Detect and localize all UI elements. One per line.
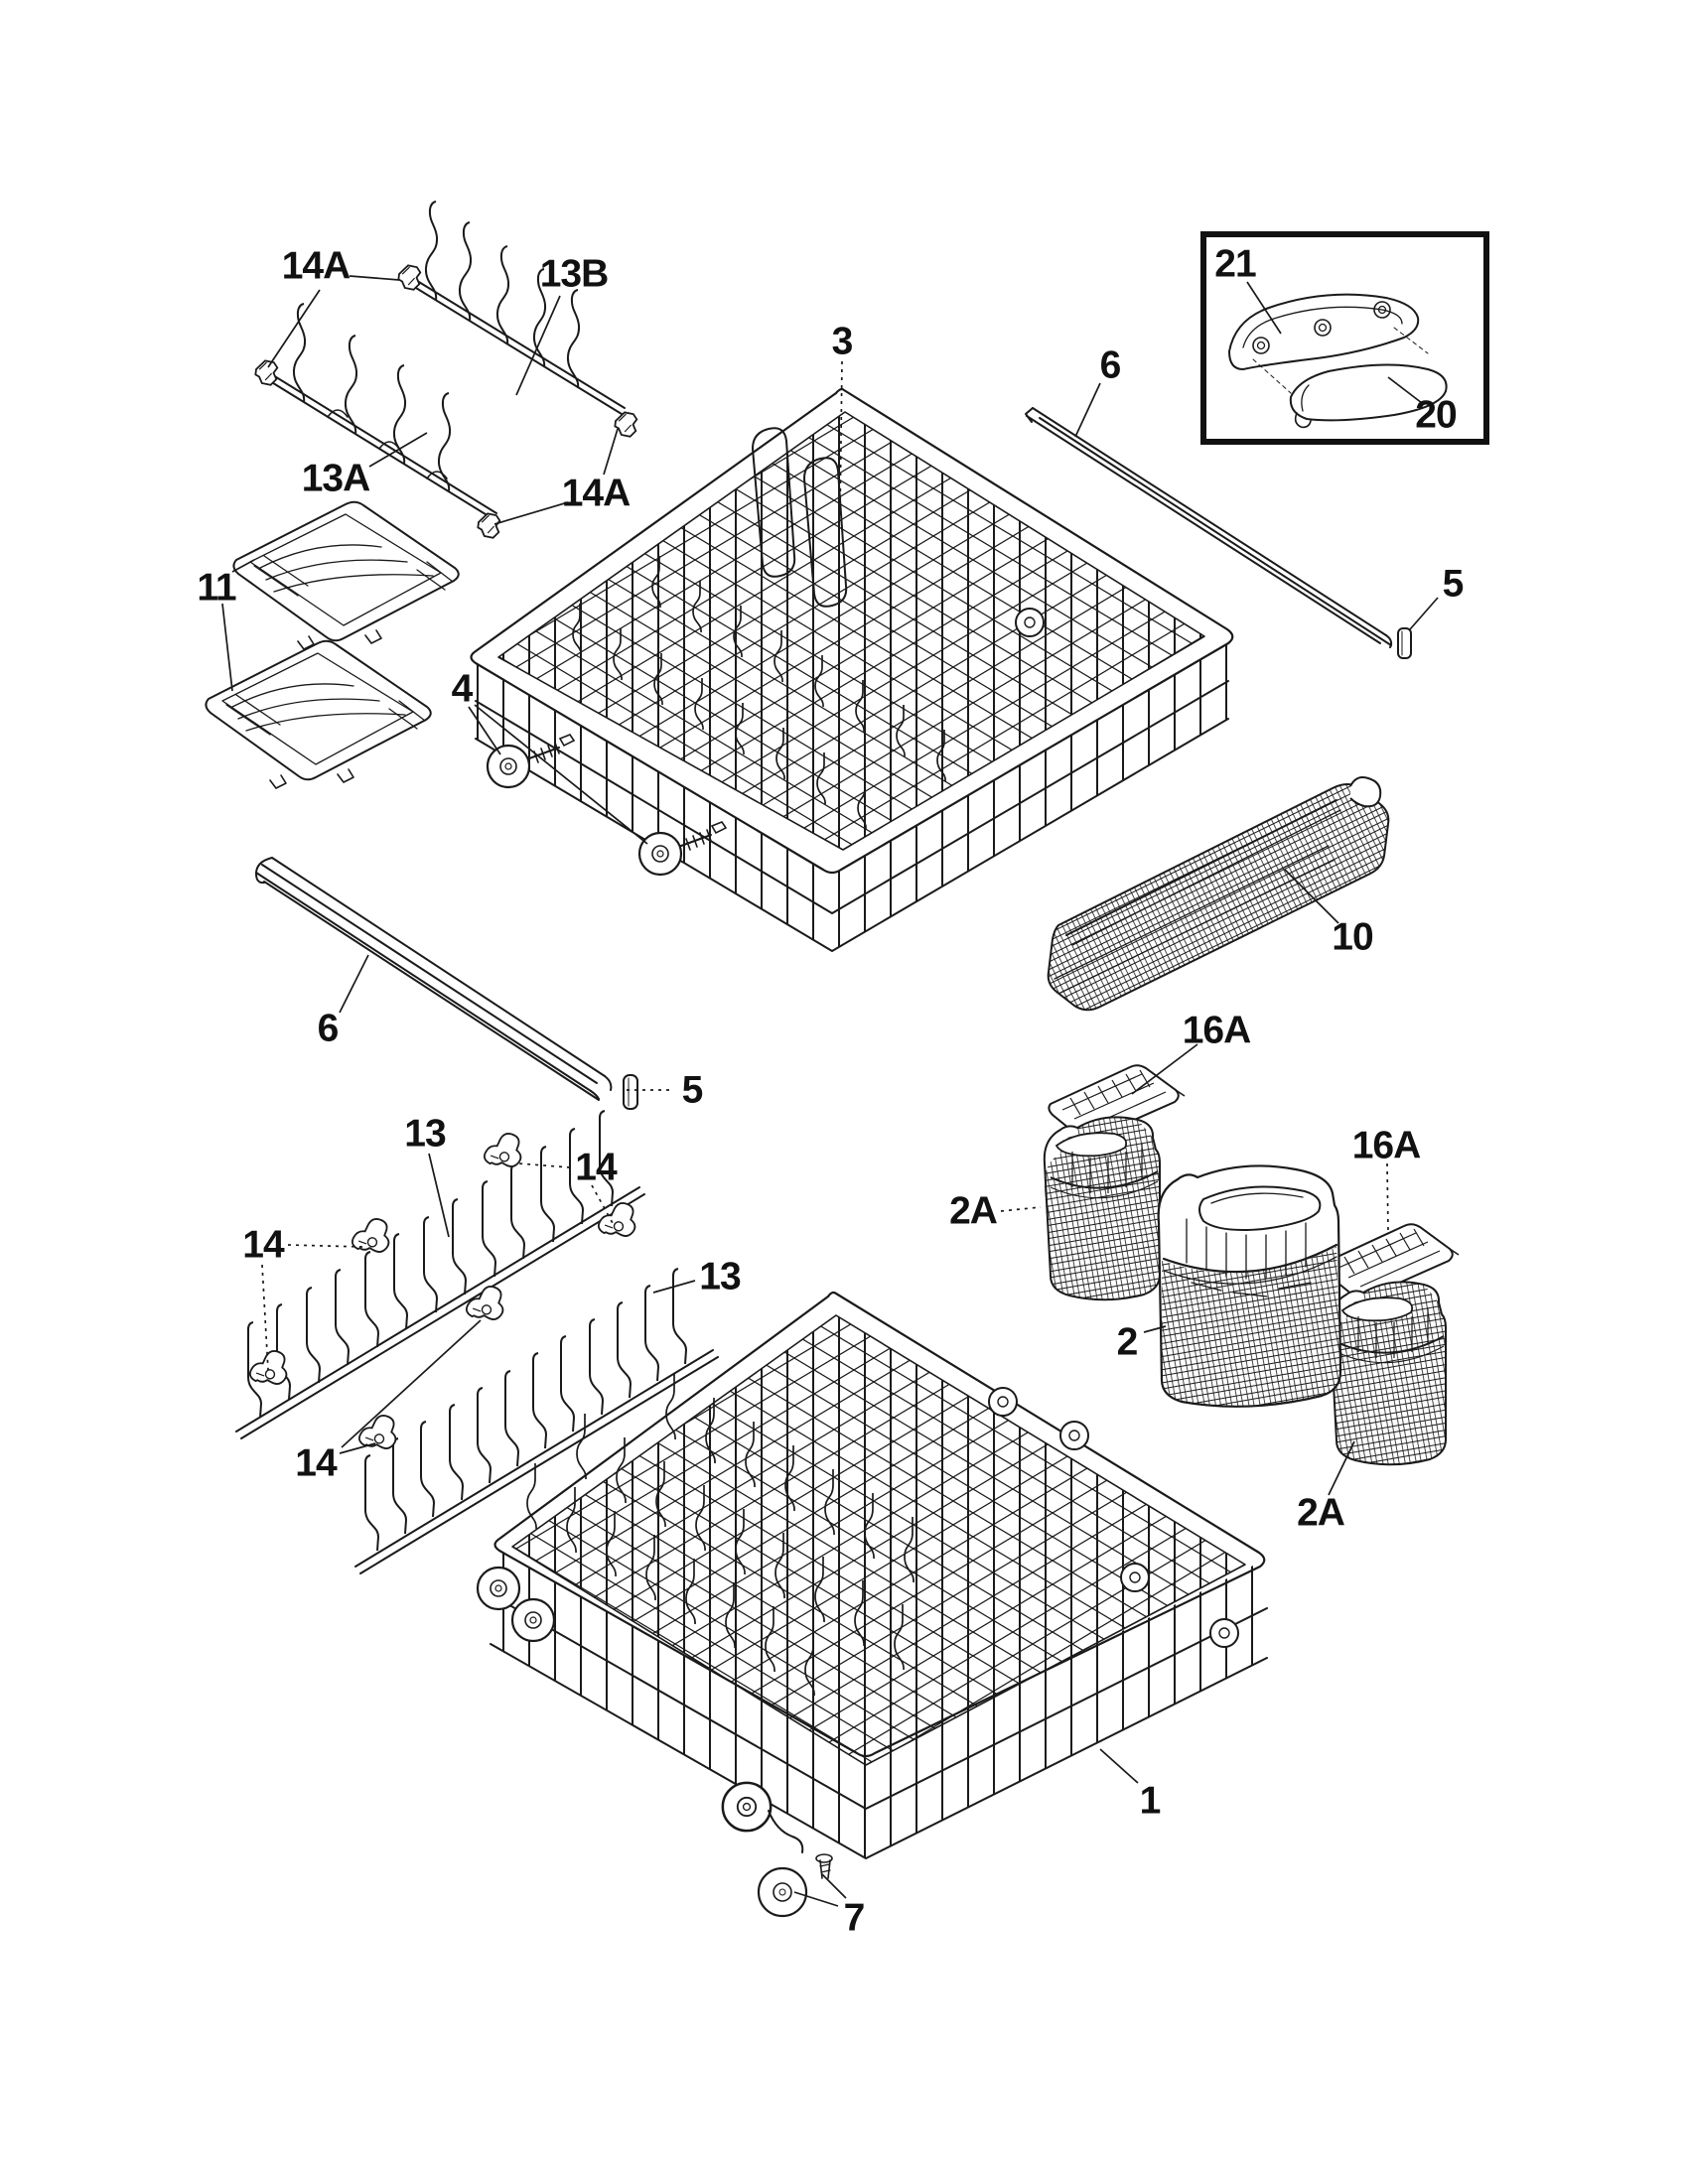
part-2-center-basket [1159,1165,1340,1406]
callout-label-13: 13 [404,1113,446,1156]
callout-label-16A: 16A [1352,1125,1421,1167]
callout-label-14: 14 [242,1224,285,1267]
leader-line [1387,1163,1388,1231]
callout-label-3: 3 [832,321,853,363]
callout-label-16A: 16A [1183,1010,1251,1052]
part-2a-basket [1045,1117,1160,1299]
callout-label-2A: 2A [949,1190,998,1233]
callout-label-13A: 13A [302,458,370,500]
callout-label-2A: 2A [1297,1492,1345,1535]
part-2a-basket-2 [1331,1282,1446,1464]
callout-label-6: 6 [1100,344,1121,387]
callout-label-5: 5 [1443,563,1464,606]
callout-label-14: 14 [295,1442,338,1485]
callout-label-6: 6 [318,1008,339,1050]
parts-diagram-canvas: 14A13B13A14A1136212054106516A131414132A1… [0,0,1688,2184]
callout-label-11: 11 [197,567,236,610]
callout-label-14A: 14A [282,245,351,288]
callout-label-10: 10 [1332,916,1373,959]
callout-label-14: 14 [575,1147,618,1189]
parts-diagram-page: 14A13B13A14A1136212054106516A131414132A1… [0,0,1688,2184]
callout-label-7: 7 [844,1897,865,1940]
callout-label-21: 21 [1214,243,1256,286]
callout-label-2: 2 [1117,1321,1138,1364]
callout-label-4: 4 [452,668,474,711]
callout-label-20: 20 [1415,394,1457,437]
callout-label-1: 1 [1140,1780,1161,1823]
callout-label-5: 5 [682,1069,703,1112]
callout-label-13B: 13B [540,253,609,296]
callout-label-13: 13 [699,1256,741,1298]
callout-label-14A: 14A [562,473,631,515]
